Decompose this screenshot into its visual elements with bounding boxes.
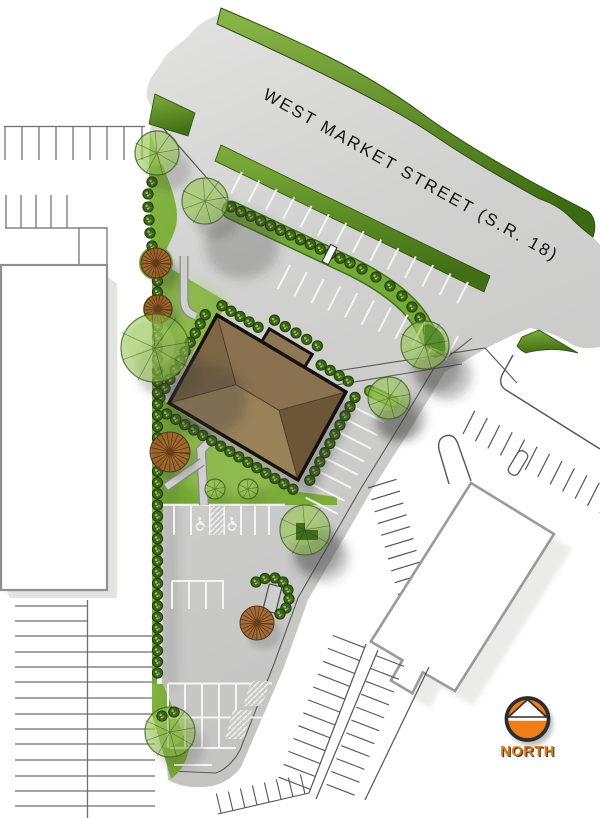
svg-text:NORTH: NORTH	[500, 744, 555, 760]
